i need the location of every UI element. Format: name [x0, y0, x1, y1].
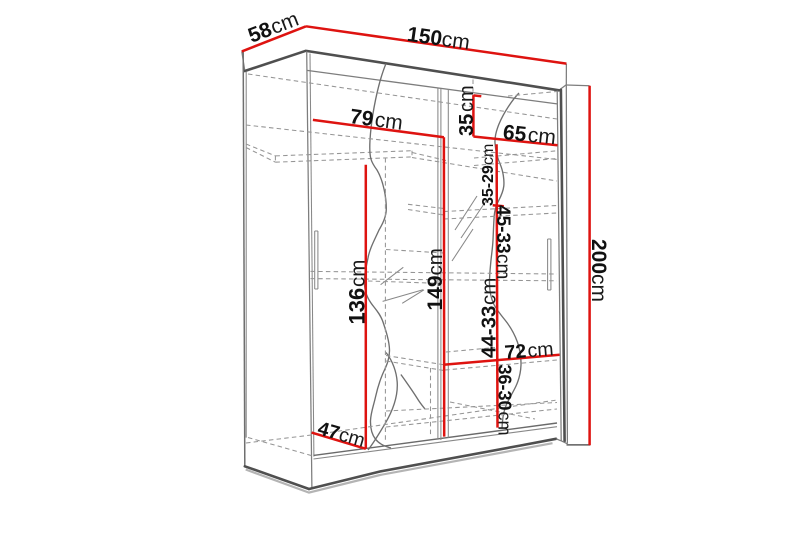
svg-text:cm: cm	[456, 85, 478, 112]
svg-text:150: 150	[406, 23, 444, 51]
svg-text:136: 136	[345, 288, 370, 325]
svg-text:cm: cm	[440, 28, 471, 55]
svg-text:cm: cm	[424, 248, 447, 275]
svg-text:45-33: 45-33	[492, 205, 513, 254]
svg-text:35-29: 35-29	[480, 165, 497, 206]
svg-text:79: 79	[349, 105, 375, 131]
svg-text:36-30: 36-30	[495, 365, 515, 411]
svg-text:cm: cm	[492, 254, 513, 279]
svg-text:cm: cm	[495, 412, 515, 436]
svg-text:35: 35	[456, 114, 478, 136]
svg-text:cm: cm	[480, 144, 497, 165]
svg-text:65: 65	[502, 121, 528, 146]
svg-text:cm: cm	[347, 260, 370, 287]
svg-text:72: 72	[504, 340, 528, 364]
svg-text:cm: cm	[527, 124, 557, 150]
svg-text:cm: cm	[478, 278, 501, 305]
svg-text:cm: cm	[587, 274, 610, 302]
svg-text:cm: cm	[527, 338, 555, 362]
svg-text:149: 149	[424, 275, 447, 310]
svg-text:44-33: 44-33	[478, 306, 501, 358]
svg-text:cm: cm	[373, 108, 404, 134]
svg-text:200: 200	[587, 239, 610, 274]
